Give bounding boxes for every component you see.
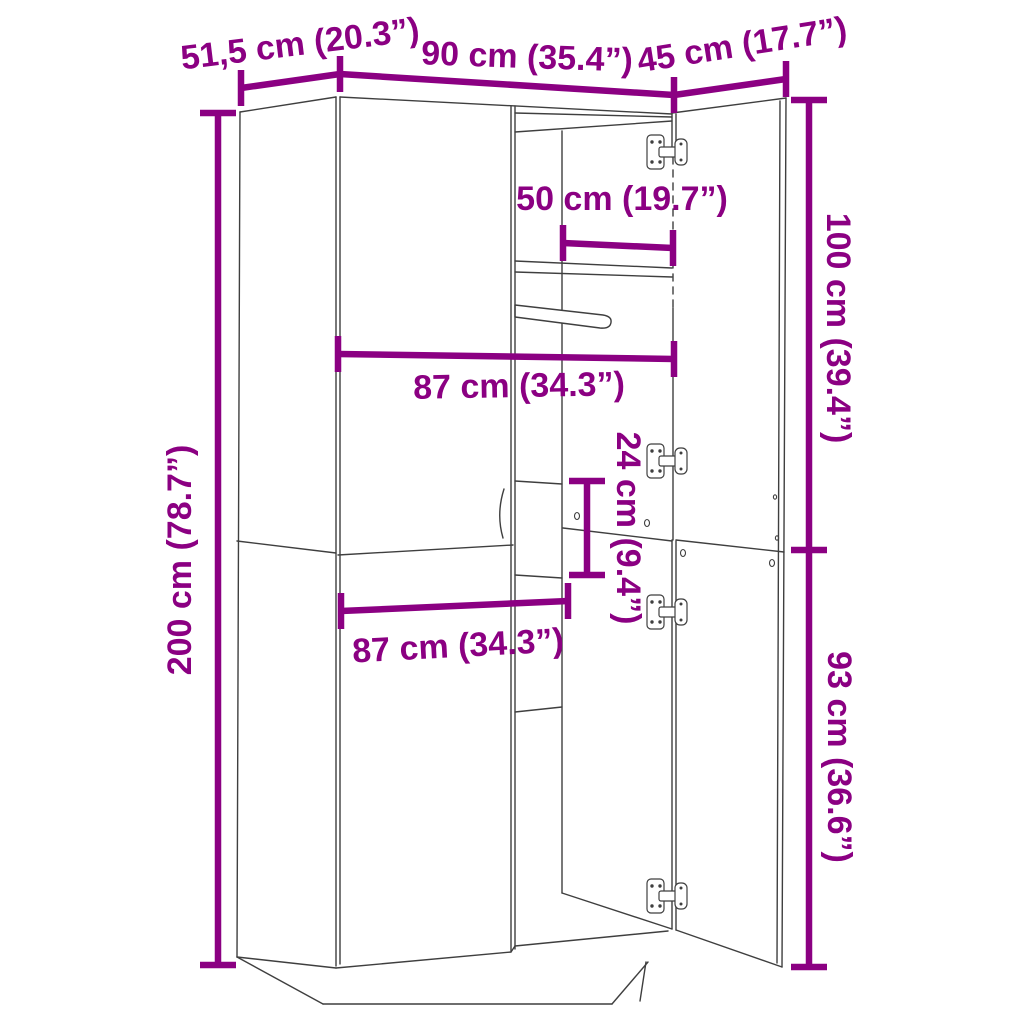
dimension-compartment-height: 24 cm (9.4”) [569,432,647,625]
dimension-inner-width-lower: 87 cm (34.3”) [341,583,568,671]
lower-shelf [515,707,562,712]
dimension-label-width-total: 90 cm (35.4”) [421,34,634,79]
dimension-label-inner-top-width: 50 cm (19.7”) [516,180,728,218]
dimension-label-upper-section-height: 100 cm (39.4”) [819,213,857,444]
wardrobe-line-art [237,97,786,1004]
dimension-annotations: 51,5 cm (20.3”) 90 cm (35.4”) 45 cm (17.… [161,10,858,967]
right-doors-open [647,98,786,967]
dimension-label-compartment-height: 24 cm (9.4”) [609,432,647,625]
door-gap-right [676,540,784,552]
dimension-label-depth: 51,5 cm (20.3”) [179,11,422,78]
left-doors-closed [336,106,515,968]
diagram-stage: 51,5 cm (20.3”) 90 cm (35.4”) 45 cm (17.… [0,0,1024,1024]
door-handle [500,489,504,538]
dimension-label-door-width: 45 cm (17.7”) [634,10,849,81]
dimension-label-total-height: 200 cm (78.7”) [161,445,199,676]
dimension-inner-top-width: 50 cm (19.7”) [516,180,728,266]
side-panel [237,97,340,968]
wardrobe-dimension-diagram: 51,5 cm (20.3”) 90 cm (35.4”) 45 cm (17.… [0,0,1024,1024]
top-shelf [515,261,672,268]
door-gap-left [338,545,513,555]
dimension-door-width: 45 cm (17.7”) [634,10,849,97]
dimension-label-lower-section-height: 93 cm (36.6”) [820,651,858,863]
dimension-lower-section-height: 93 cm (36.6”) [791,550,858,967]
clothes-rail [515,305,611,328]
dimension-label-inner-width-upper: 87 cm (34.3”) [413,365,625,407]
small-compartment-bottom [515,575,562,578]
dimension-upper-section-height: 100 cm (39.4”) [791,100,857,550]
dimension-total-height: 200 cm (78.7”) [161,113,236,965]
dimension-inner-width-upper: 87 cm (34.3”) [338,336,674,407]
top-frame [340,97,672,132]
small-compartment-top [515,481,562,484]
dimension-depth: 51,5 cm (20.3”) [179,11,422,106]
dimension-label-inner-width-lower: 87 cm (34.3”) [351,621,564,670]
